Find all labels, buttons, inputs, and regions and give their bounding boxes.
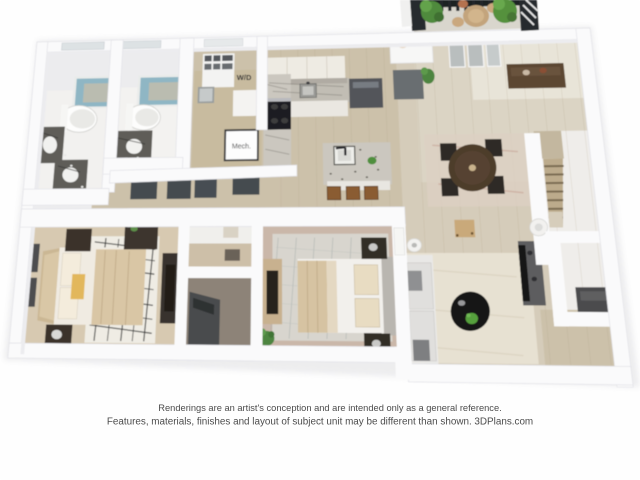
svg-text:Renderings are an artist's con: Renderings are an artist's conception an… xyxy=(158,403,501,413)
svg-text:Features, materials, finishes: Features, materials, finishes and layout… xyxy=(107,417,533,428)
svg-text:W/D: W/D xyxy=(237,73,252,82)
svg-text:Mech.: Mech. xyxy=(232,144,251,151)
